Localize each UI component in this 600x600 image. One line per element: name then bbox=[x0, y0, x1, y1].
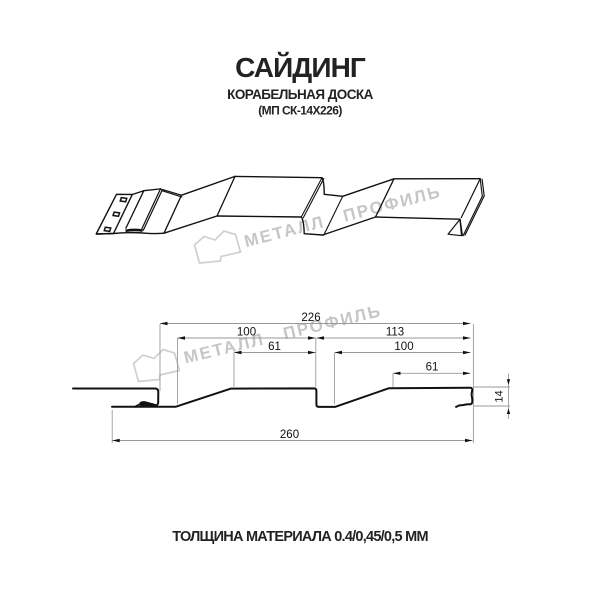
svg-text:226: 226 bbox=[301, 312, 320, 324]
svg-text:61: 61 bbox=[268, 341, 281, 353]
svg-text:МЕТАЛЛ ПРОФИЛЬ: МЕТАЛЛ ПРОФИЛЬ bbox=[182, 301, 384, 367]
svg-text:(МП СК-14Х226): (МП СК-14Х226) bbox=[258, 104, 342, 118]
svg-text:КОРАБЕЛЬНАЯ ДОСКА: КОРАБЕЛЬНАЯ ДОСКА bbox=[227, 87, 373, 102]
svg-text:61: 61 bbox=[426, 362, 439, 374]
svg-text:100: 100 bbox=[237, 327, 256, 339]
svg-text:САЙДИНГ: САЙДИНГ bbox=[235, 51, 366, 83]
svg-text:113: 113 bbox=[386, 327, 404, 339]
svg-text:260: 260 bbox=[280, 429, 299, 441]
svg-text:14: 14 bbox=[494, 390, 506, 402]
svg-text:ТОЛЩИНА МАТЕРИАЛА 0.4/0,45/0,5: ТОЛЩИНА МАТЕРИАЛА 0.4/0,45/0,5 ММ bbox=[172, 529, 428, 545]
svg-text:100: 100 bbox=[394, 341, 413, 353]
